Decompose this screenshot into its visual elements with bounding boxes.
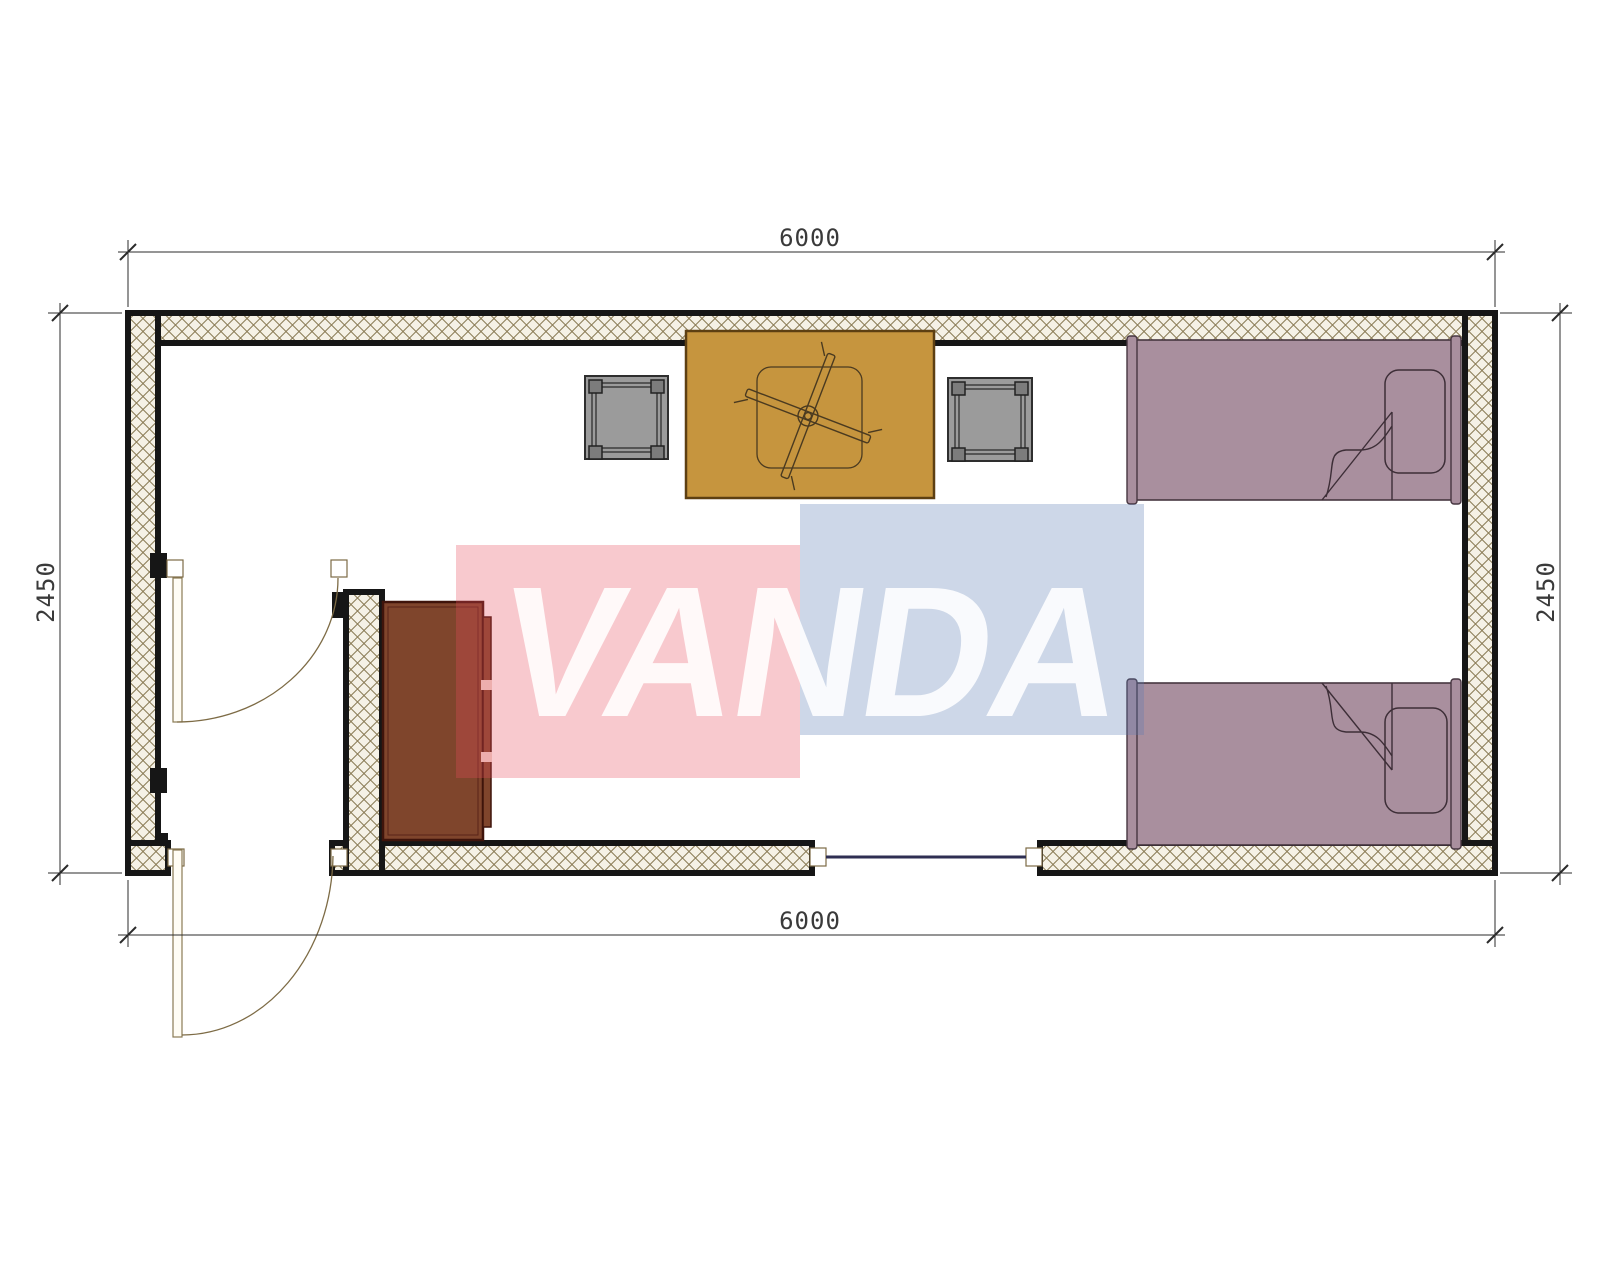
- floor-plan-svg: VANDA 6000 6000 2450 2450: [0, 0, 1600, 1280]
- window-jamb: [810, 848, 826, 866]
- stool-left: [585, 376, 668, 459]
- window-jamb: [1026, 848, 1042, 866]
- table-top: [686, 331, 934, 498]
- bed-footboard: [1451, 679, 1461, 849]
- bed-footboard: [1451, 336, 1461, 504]
- dim-label-left: 2450: [32, 561, 60, 623]
- door-frame-block: [331, 560, 347, 577]
- pillow: [1385, 370, 1445, 473]
- bottom-wall-left-stub: [128, 843, 168, 873]
- entry-door-swing-arc: [182, 856, 333, 1035]
- bottom-wall-right: [1040, 843, 1495, 873]
- floor-plan-page: VANDA 6000 6000 2450 2450: [0, 0, 1600, 1280]
- partition-wall: [346, 592, 382, 873]
- interior-door: [173, 578, 338, 722]
- door-frame-block: [167, 560, 183, 577]
- watermark: VANDA: [456, 504, 1144, 778]
- pillow: [1385, 708, 1447, 813]
- interior-door-swing-arc: [177, 578, 338, 722]
- entry-door-leaf: [173, 850, 182, 1037]
- bottom-wall-main: [332, 843, 812, 873]
- bed-top: [1127, 336, 1461, 504]
- partition-top-jamb: [332, 592, 346, 618]
- dining-table: [686, 320, 934, 511]
- corner-jamb: [156, 833, 168, 845]
- bed-bottom: [1127, 679, 1461, 849]
- bed-headboard: [1127, 336, 1137, 504]
- watermark-text: VANDA: [486, 548, 1137, 756]
- entry-door: [173, 850, 333, 1037]
- left-wall-upper-jamb: [150, 553, 167, 578]
- dim-label-right: 2450: [1532, 561, 1560, 623]
- interior-door-leaf: [173, 578, 182, 722]
- dim-label-bottom: 6000: [779, 907, 841, 935]
- stool-right: [948, 378, 1032, 461]
- left-wall-lower-jamb: [150, 768, 167, 793]
- dim-label-top: 6000: [779, 224, 841, 252]
- right-wall: [1465, 313, 1495, 873]
